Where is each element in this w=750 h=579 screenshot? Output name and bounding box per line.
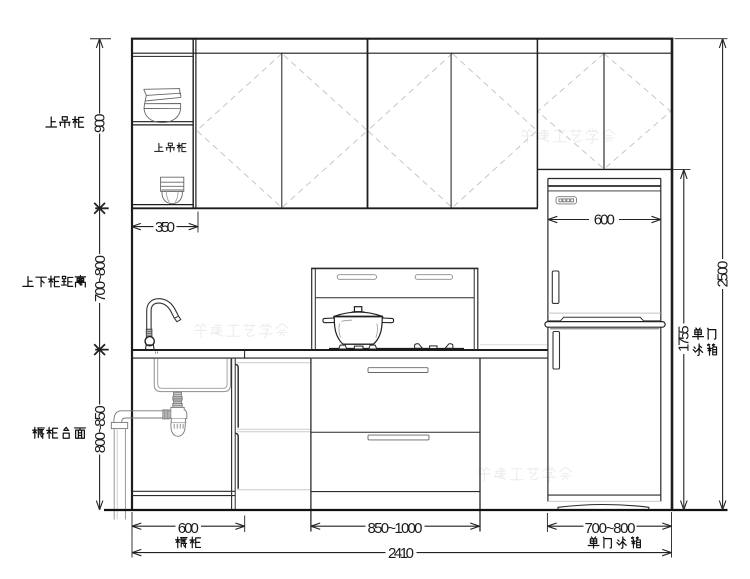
svg-text:700~800: 700~800 [92, 255, 109, 302]
svg-text:700~800: 700~800 [585, 520, 636, 537]
svg-text:1755: 1755 [676, 325, 693, 352]
svg-text:800~850: 800~850 [92, 405, 109, 453]
svg-text:350: 350 [155, 219, 175, 236]
svg-text:850~1000: 850~1000 [368, 520, 423, 537]
svg-text:900: 900 [91, 114, 108, 134]
svg-text:2500: 2500 [715, 261, 732, 288]
svg-text:2410: 2410 [388, 545, 414, 562]
svg-text:600: 600 [178, 520, 199, 537]
svg-text:600: 600 [594, 212, 615, 229]
